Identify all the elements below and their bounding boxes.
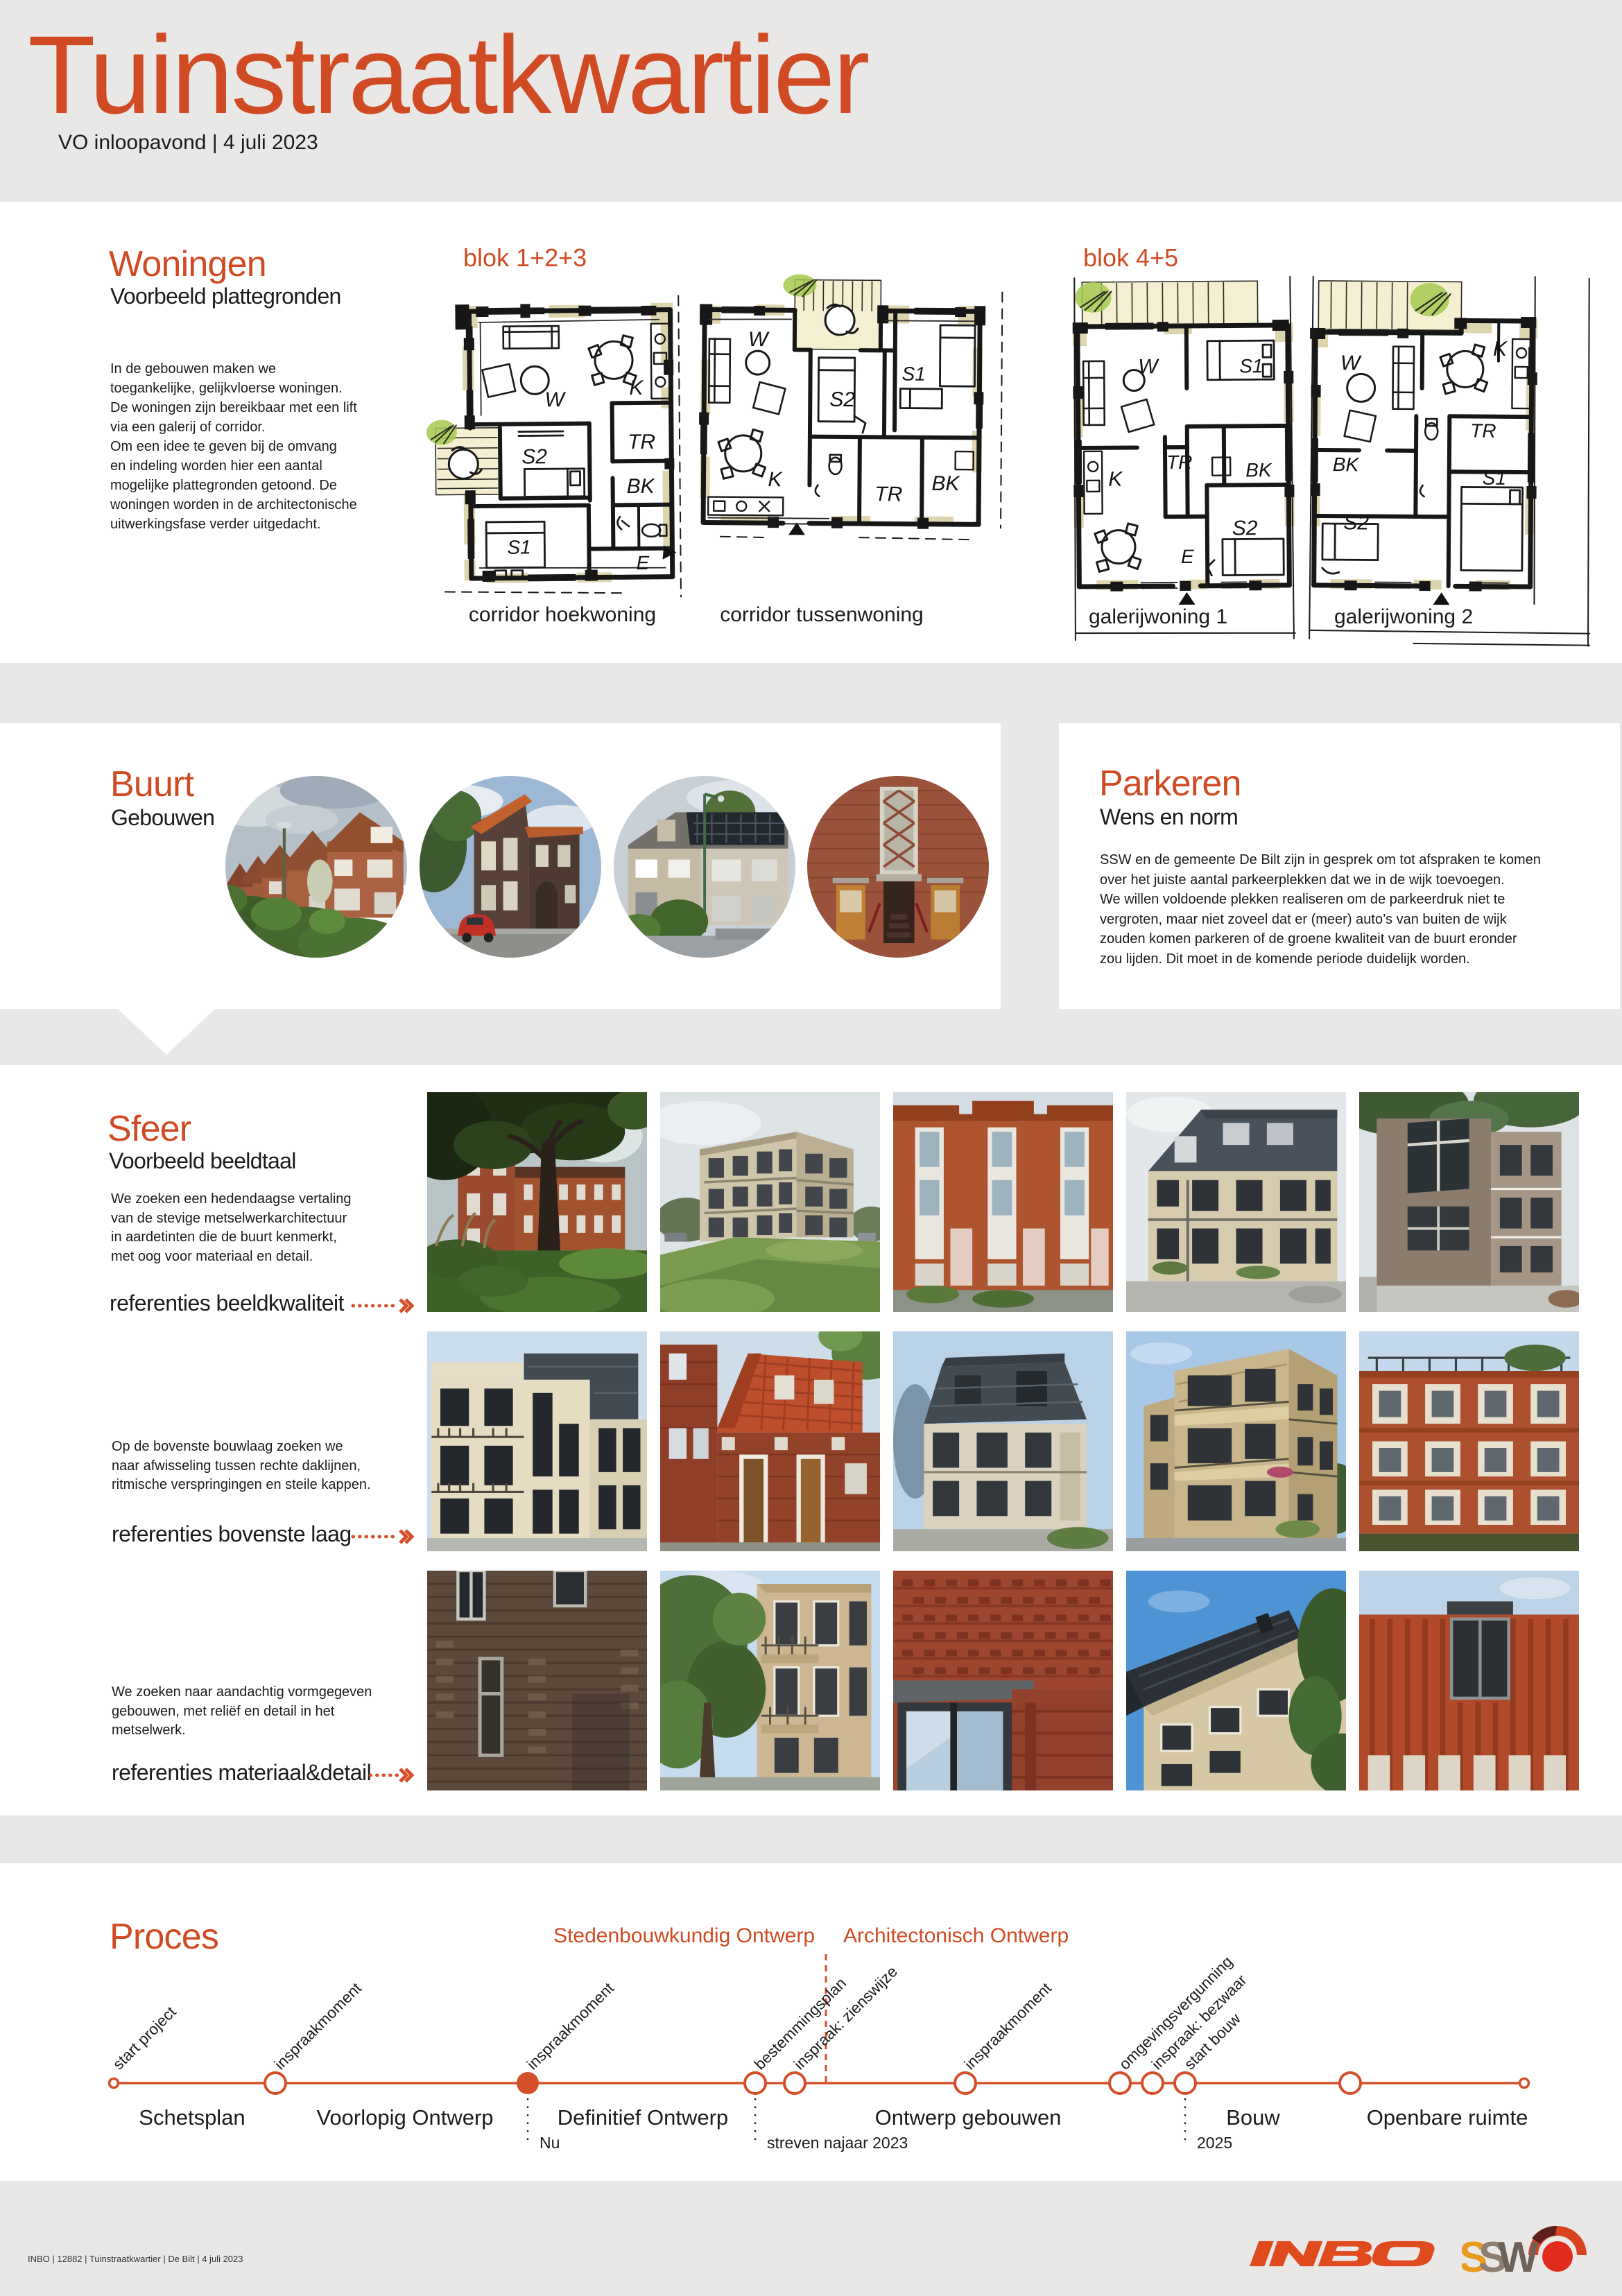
- svg-text:S2: S2: [521, 445, 547, 468]
- svg-text:S2: S2: [1343, 511, 1369, 534]
- svg-text:Nu: Nu: [540, 2134, 560, 2152]
- svg-text:TR: TR: [874, 483, 902, 506]
- svg-text:S1: S1: [1239, 355, 1263, 377]
- svg-text:S2: S2: [1232, 517, 1258, 540]
- svg-text:S2: S2: [829, 388, 855, 411]
- svg-text:K: K: [629, 377, 644, 399]
- svg-text:S1: S1: [507, 536, 531, 558]
- svg-text:E: E: [636, 552, 649, 573]
- svg-text:TR: TR: [1470, 420, 1496, 441]
- svg-text:S1: S1: [1483, 467, 1506, 489]
- svg-text:W: W: [1498, 2234, 1539, 2280]
- svg-text:Voorlopig Ontwerp: Voorlopig Ontwerp: [316, 2105, 493, 2130]
- svg-text:BK: BK: [931, 472, 960, 495]
- svg-text:inspraakmoment: inspraakmoment: [961, 1979, 1055, 2073]
- svg-text:W: W: [544, 388, 566, 411]
- svg-text:BK: BK: [626, 475, 655, 498]
- svg-text:inspraakmoment: inspraakmoment: [524, 1979, 618, 2073]
- svg-text:Definitief Ontwerp: Definitief Ontwerp: [558, 2105, 728, 2130]
- svg-text:streven najaar 2023: streven najaar 2023: [767, 2134, 908, 2152]
- svg-text:TR: TR: [628, 431, 655, 454]
- svg-text:Bouw: Bouw: [1226, 2105, 1280, 2130]
- svg-text:2025: 2025: [1197, 2134, 1232, 2152]
- svg-text:inspraakmoment: inspraakmoment: [271, 1979, 365, 2073]
- svg-text:W: W: [1340, 352, 1362, 374]
- svg-text:BK: BK: [1245, 459, 1272, 481]
- svg-text:E: E: [1181, 546, 1194, 567]
- svg-text:Schetsplan: Schetsplan: [139, 2105, 245, 2130]
- svg-text:K: K: [1493, 338, 1508, 361]
- svg-text:Openbare ruimte: Openbare ruimte: [1367, 2105, 1528, 2130]
- svg-text:K: K: [1108, 468, 1123, 491]
- svg-text:TR: TR: [1166, 451, 1193, 473]
- svg-text:W: W: [1138, 355, 1159, 378]
- svg-text:W: W: [748, 328, 770, 351]
- svg-text:K: K: [768, 468, 783, 491]
- svg-text:start project: start project: [110, 2003, 180, 2073]
- svg-text:Ontwerp gebouwen: Ontwerp gebouwen: [875, 2105, 1062, 2130]
- svg-text:BK: BK: [1333, 454, 1360, 475]
- svg-text:S1: S1: [901, 363, 925, 385]
